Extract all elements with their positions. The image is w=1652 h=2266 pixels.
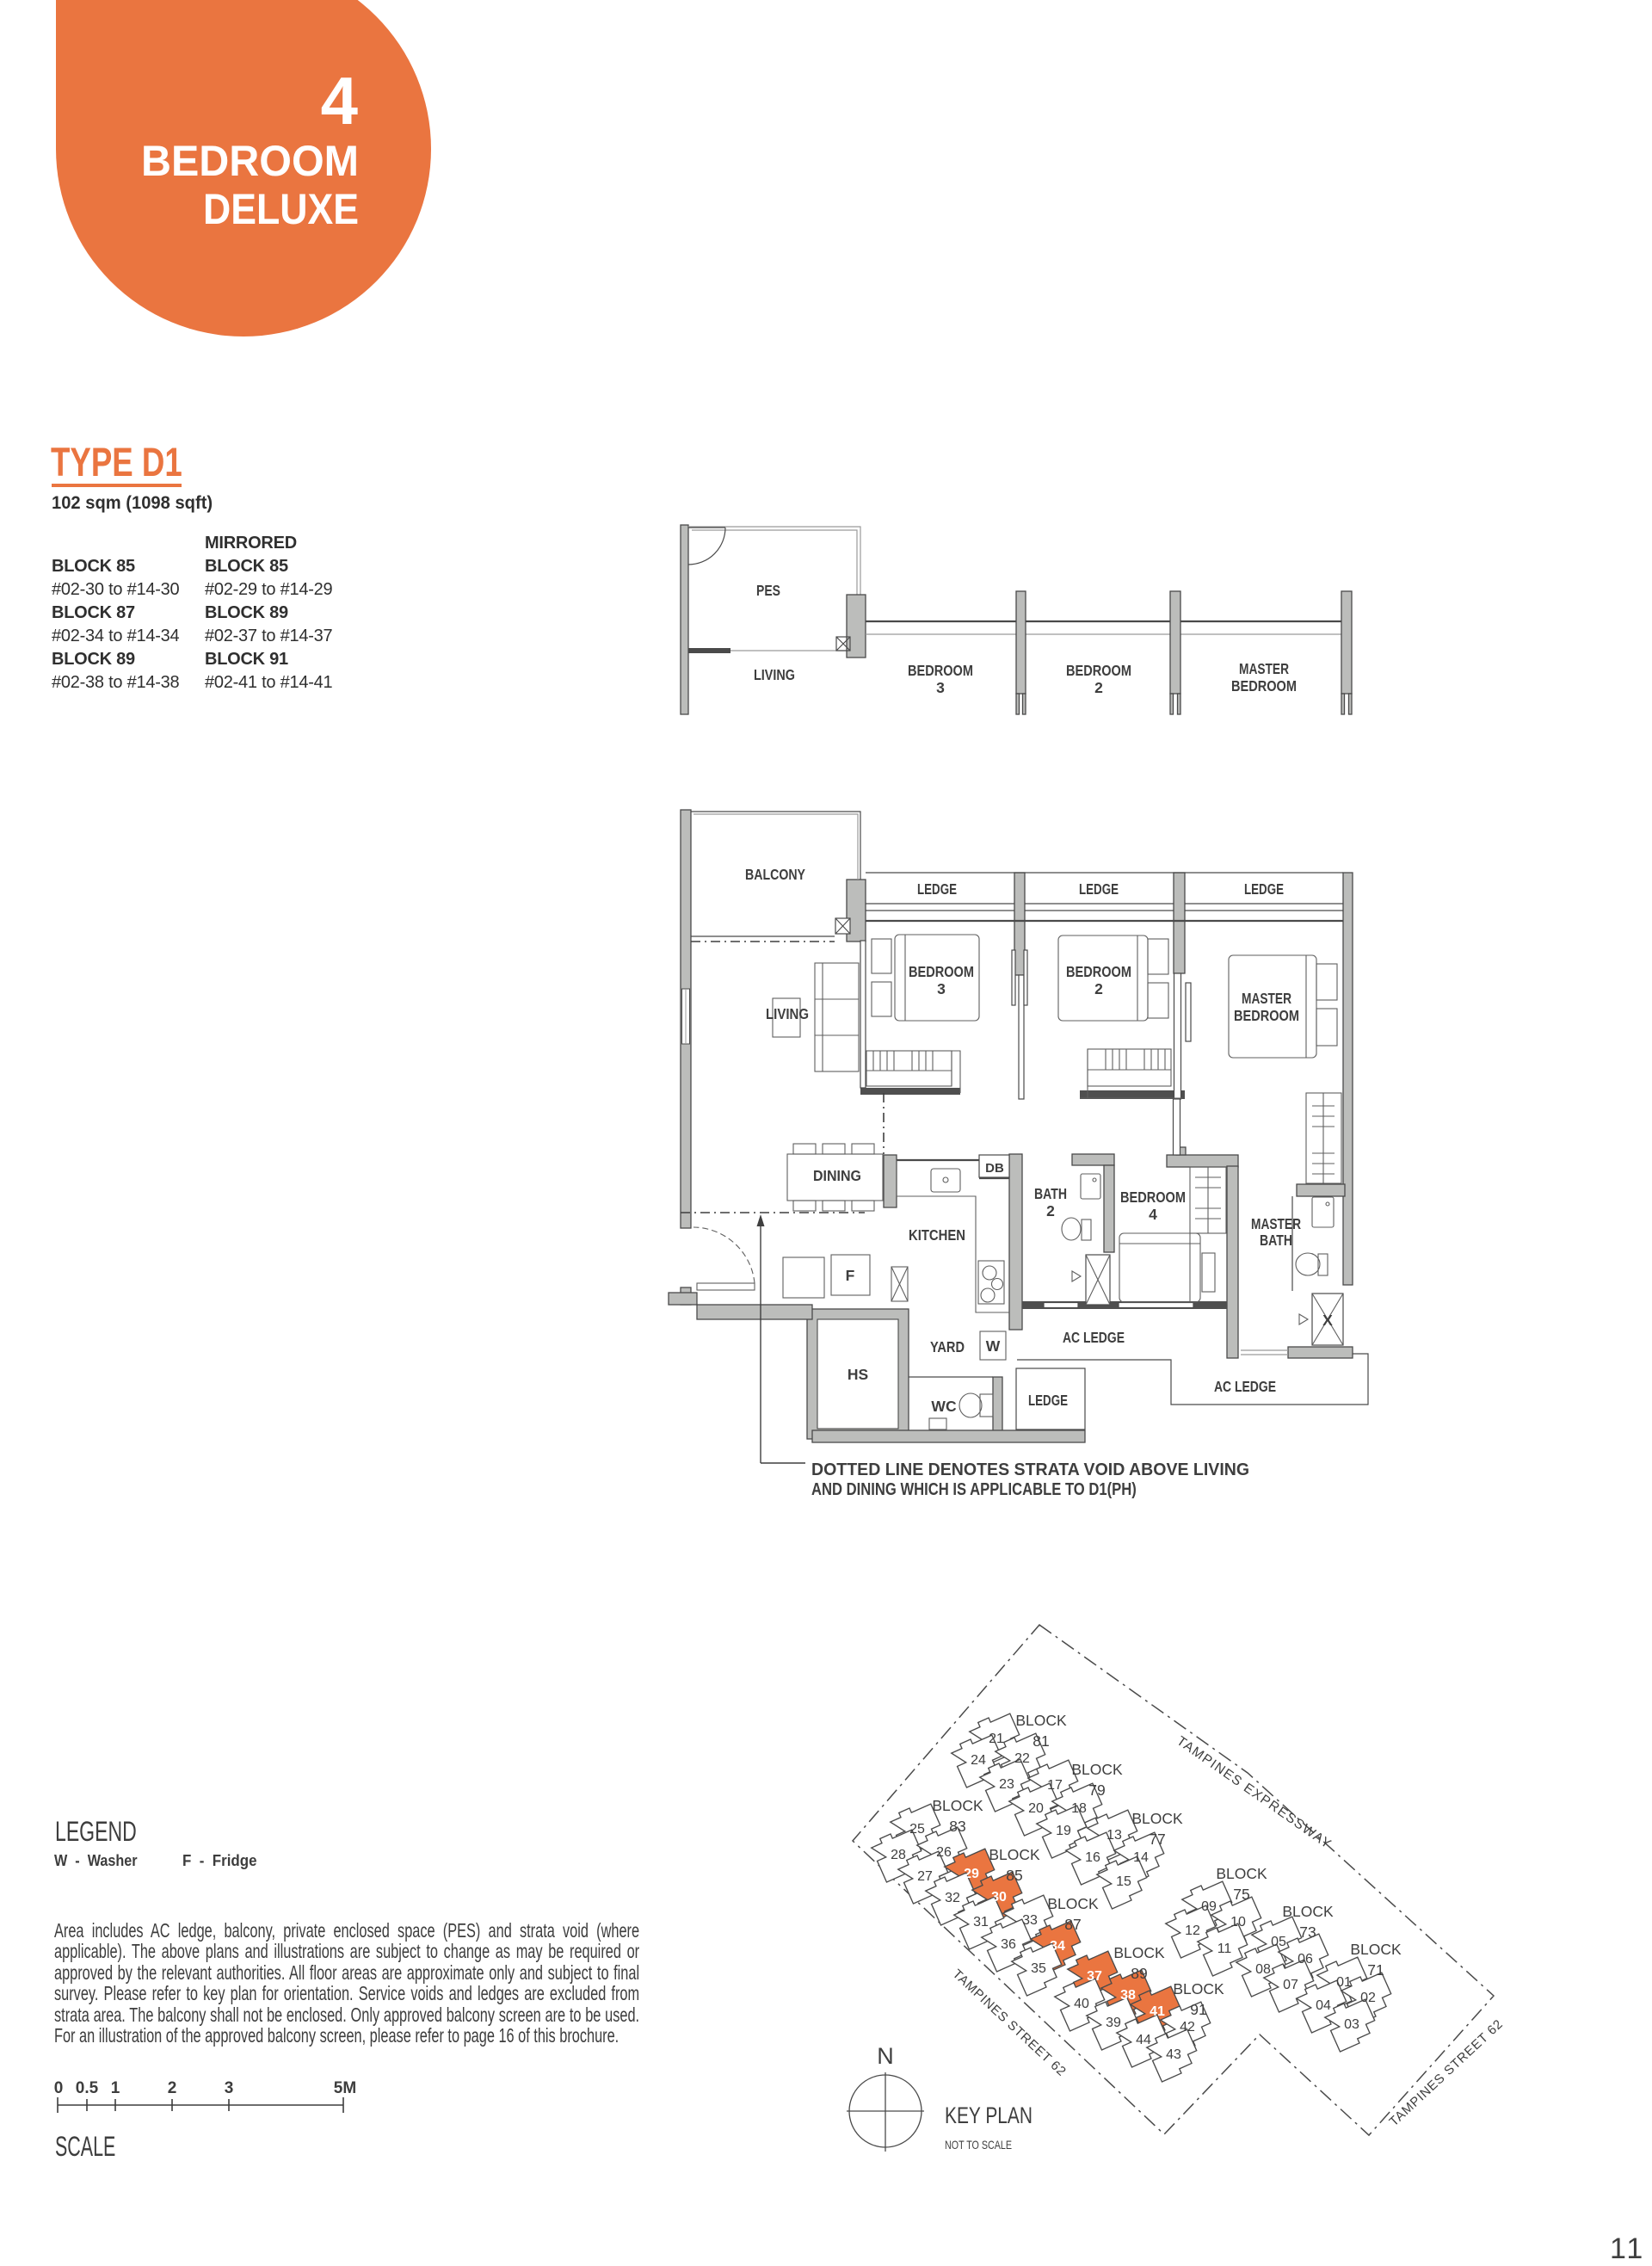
svg-text:32: 32 [945,1891,960,1905]
svg-text:LEDGE: LEDGE [1028,1392,1068,1409]
svg-text:BALCONY: BALCONY [745,866,805,883]
svg-text:BEDROOM: BEDROOM [1066,963,1131,980]
svg-text:23: 23 [999,1777,1014,1792]
svg-text:BLOCK: BLOCK [1071,1761,1123,1778]
svg-text:BEDROOM: BEDROOM [1120,1189,1186,1206]
svg-text:LEDGE: LEDGE [1079,880,1119,898]
svg-text:01: 01 [1336,1975,1352,1990]
svg-text:29: 29 [964,1867,979,1881]
svg-text:BLOCK: BLOCK [1113,1944,1165,1961]
svg-text:0.5: 0.5 [76,2079,99,2097]
svg-text:26: 26 [936,1845,952,1860]
svg-text:BEDROOM: BEDROOM [909,963,974,980]
svg-text:03: 03 [1344,2017,1359,2032]
svg-text:79: 79 [1088,1781,1105,1799]
svg-text:37: 37 [1087,1969,1102,1984]
svg-text:13: 13 [1106,1828,1122,1843]
svg-text:21: 21 [989,1732,1004,1746]
svg-text:27: 27 [917,1869,933,1884]
svg-text:14: 14 [1133,1850,1149,1865]
svg-text:KITCHEN: KITCHEN [909,1226,965,1244]
svg-text:06: 06 [1298,1952,1313,1967]
svg-text:11: 11 [1217,1942,1232,1956]
svg-text:TAMPINES STREET 62: TAMPINES STREET 62 [1387,2016,1507,2129]
svg-text:HS: HS [848,1366,868,1383]
svg-text:75: 75 [1233,1886,1249,1903]
svg-text:DINING: DINING [813,1167,861,1184]
svg-text:36: 36 [1001,1937,1016,1952]
svg-text:MASTER: MASTER [1239,660,1289,677]
svg-text:0: 0 [54,2079,64,2097]
svg-text:F: F [846,1267,855,1284]
svg-text:91: 91 [1190,2001,1206,2018]
svg-text:3: 3 [936,679,945,696]
svg-text:40: 40 [1074,1997,1089,2011]
svg-text:LIVING: LIVING [766,1005,809,1022]
svg-text:85: 85 [1006,1867,1022,1884]
svg-text:4: 4 [1149,1206,1157,1223]
svg-text:22: 22 [1014,1751,1030,1766]
svg-text:5M: 5M [334,2079,356,2097]
svg-text:35: 35 [1031,1961,1046,1976]
svg-text:42: 42 [1180,2020,1195,2034]
svg-text:BATH: BATH [1034,1185,1067,1202]
svg-text:12: 12 [1185,1923,1200,1938]
svg-text:TAMPINES STREET 62: TAMPINES STREET 62 [950,1967,1069,2079]
svg-text:TAMPINES EXPRESSWAY: TAMPINES EXPRESSWAY [1174,1733,1335,1852]
svg-text:BLOCK: BLOCK [989,1846,1040,1863]
svg-text:28: 28 [891,1848,906,1862]
svg-text:BLOCK: BLOCK [1015,1712,1067,1729]
svg-text:73: 73 [1299,1923,1316,1941]
svg-text:BLOCK: BLOCK [1047,1895,1099,1912]
svg-text:10: 10 [1230,1915,1246,1929]
svg-text:DELUXE: DELUXE [203,185,359,233]
svg-text:3: 3 [937,980,946,997]
svg-text:17: 17 [1047,1778,1063,1793]
svg-text:LIVING: LIVING [754,666,795,683]
svg-text:83: 83 [949,1818,965,1835]
svg-text:81: 81 [1032,1732,1049,1750]
svg-text:LEDGE: LEDGE [917,880,957,898]
svg-text:31: 31 [973,1915,989,1929]
svg-text:04: 04 [1316,1998,1331,2013]
svg-text:BEDROOM: BEDROOM [141,137,359,185]
svg-text:38: 38 [1120,1988,1136,2003]
svg-text:BEDROOM: BEDROOM [1231,677,1297,695]
svg-text:NOT TO SCALE: NOT TO SCALE [945,2138,1012,2152]
svg-text:MASTER: MASTER [1251,1215,1301,1232]
svg-text:16: 16 [1085,1850,1100,1865]
svg-text:BATH: BATH [1260,1232,1292,1249]
svg-text:24: 24 [971,1753,986,1768]
svg-text:W: W [986,1337,1001,1355]
svg-text:YARD: YARD [930,1338,965,1355]
svg-text:89: 89 [1131,1965,1147,1982]
svg-text:BEDROOM: BEDROOM [1066,662,1131,679]
svg-text:2: 2 [1094,679,1103,696]
svg-text:71: 71 [1367,1961,1384,1979]
svg-text:MASTER: MASTER [1242,990,1291,1007]
svg-text:1: 1 [111,2079,120,2097]
svg-text:33: 33 [1022,1913,1038,1928]
svg-text:AC LEDGE: AC LEDGE [1063,1329,1125,1346]
svg-text:87: 87 [1064,1916,1081,1933]
svg-text:30: 30 [991,1890,1007,1905]
svg-text:N: N [877,2043,894,2069]
svg-text:4: 4 [321,63,358,139]
svg-text:09: 09 [1201,1899,1217,1914]
svg-text:LEDGE: LEDGE [1244,880,1284,898]
svg-text:25: 25 [909,1822,925,1837]
svg-text:BEDROOM: BEDROOM [1234,1007,1299,1024]
svg-text:15: 15 [1116,1874,1131,1889]
svg-text:20: 20 [1028,1801,1044,1816]
svg-text:KEY PLAN: KEY PLAN [945,2102,1032,2128]
svg-text:39: 39 [1106,2016,1121,2030]
svg-text:18: 18 [1071,1801,1087,1816]
svg-text:PES: PES [756,582,780,599]
svg-text:2: 2 [168,2079,177,2097]
svg-text:3: 3 [225,2079,234,2097]
svg-text:08: 08 [1255,1962,1271,1977]
svg-text:BLOCK: BLOCK [1131,1810,1183,1827]
svg-text:2: 2 [1046,1202,1055,1219]
svg-text:19: 19 [1056,1824,1071,1838]
svg-text:07: 07 [1283,1978,1298,1992]
svg-text:34: 34 [1050,1939,1065,1954]
svg-text:BLOCK: BLOCK [1216,1865,1267,1882]
svg-text:BLOCK: BLOCK [932,1797,983,1814]
svg-text:BLOCK: BLOCK [1173,1980,1224,1997]
svg-text:2: 2 [1094,980,1103,997]
svg-text:BLOCK: BLOCK [1282,1903,1334,1920]
svg-text:X: X [1322,1312,1333,1329]
svg-text:BLOCK: BLOCK [1350,1941,1402,1958]
svg-text:BEDROOM: BEDROOM [908,662,973,679]
svg-text:05: 05 [1271,1935,1286,1949]
svg-text:AC LEDGE: AC LEDGE [1214,1378,1276,1395]
svg-text:43: 43 [1166,2047,1181,2062]
svg-text:41: 41 [1150,2004,1165,2019]
svg-text:WC: WC [931,1398,957,1415]
svg-text:77: 77 [1149,1831,1165,1848]
svg-text:DB: DB [985,1161,1004,1176]
svg-text:44: 44 [1136,2033,1151,2047]
svg-text:02: 02 [1360,1991,1376,2005]
